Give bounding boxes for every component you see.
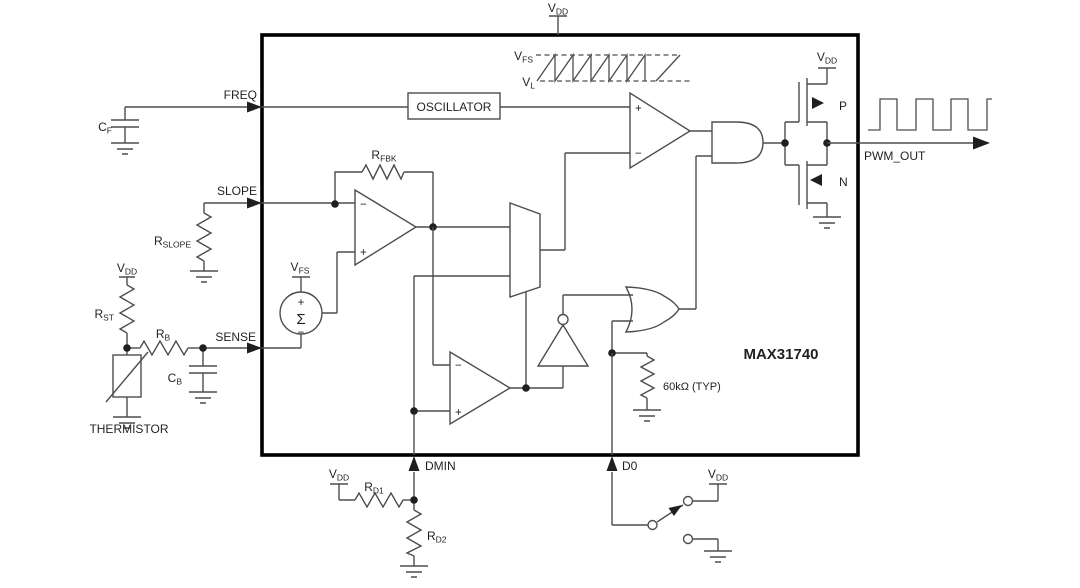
dmin-pin: DMIN (409, 456, 456, 500)
chip-name-label: MAX31740 (743, 346, 818, 363)
thermistor: THERMISTOR (89, 352, 168, 436)
vfs-source-label: VFS (291, 260, 310, 276)
d0-pin-arrow (607, 456, 618, 471)
rslope-resistor: RSLOPE (154, 203, 218, 282)
junction-dot (522, 384, 530, 392)
dmin-comp-minus-wire (433, 227, 450, 365)
pwm-comparator-plus: + (635, 103, 642, 115)
nmos-ground (813, 217, 841, 228)
max31740-functional-diagram: MAX31740 VDD FREQ CF SLOPE RSLOPE VDD RS… (0, 0, 1080, 588)
junction-dot (123, 344, 131, 352)
or-lower-in-wire (612, 321, 633, 353)
error-amplifier-minus: − (360, 199, 367, 211)
rb-label: RB (156, 327, 171, 343)
pwm-waveform (868, 99, 992, 130)
switch-gnd-contact (684, 535, 693, 544)
rd1-label: RD1 (364, 480, 384, 496)
or-gate (626, 287, 679, 332)
vl-level-label: VL (522, 75, 535, 91)
rfbk-label: RFBK (371, 148, 397, 164)
slope-pin: SLOPE (204, 184, 262, 209)
and-gate (712, 122, 763, 163)
slope-pin-label: SLOPE (217, 184, 257, 198)
inverter-bubble (558, 315, 568, 325)
slope-pin-arrow (247, 198, 262, 209)
sense-pin-arrow (247, 343, 262, 354)
pwm-out-label: PWM_OUT (864, 149, 926, 163)
pullup-resistor-60k: 60kΩ (TYP) (612, 353, 721, 421)
dmin-comp-out-wire (510, 292, 563, 388)
vdd-supply-top: VDD (548, 1, 568, 35)
cf-label: CF (98, 120, 112, 136)
pmos-arrow (812, 97, 824, 109)
pwm-comparator: + − (630, 93, 690, 168)
dmin-pin-arrow (409, 456, 420, 471)
dmin-pin-label: DMIN (425, 459, 456, 473)
sawtooth-waveform: VFS VL (514, 49, 691, 91)
junction-dot (410, 407, 418, 415)
vdd-supply-rd1: VDD (329, 467, 355, 500)
freq-pin: FREQ (125, 88, 262, 113)
vfs-summer: VFS + Σ − (280, 252, 355, 339)
pmos-transistor: P VDD (799, 50, 847, 143)
inverter-gate (538, 295, 633, 388)
or-out-wire (679, 156, 712, 309)
rslope-ground (190, 271, 218, 282)
freq-pin-label: FREQ (224, 88, 257, 102)
dmin-comparator: − + (450, 352, 510, 424)
switch-common-contact (648, 521, 657, 530)
vdd-fet-label: VDD (817, 50, 837, 66)
cf-capacitor: CF (98, 107, 139, 154)
pullup-ground (633, 410, 661, 421)
switch-arm-arrow (669, 505, 683, 516)
rd2-ground (400, 566, 428, 577)
ic-boundary (262, 35, 858, 455)
pullup-60k-label: 60kΩ (TYP) (663, 381, 721, 393)
oscillator-label: OSCILLATOR (417, 100, 492, 114)
pwm-comparator-minus: − (635, 148, 642, 160)
junction-dot (781, 139, 789, 147)
vdd-supply-left: VDD (117, 261, 137, 285)
rd1-resistor: RD1 (355, 480, 414, 507)
rb-resistor: RB (127, 327, 203, 355)
vdd-left-label: VDD (117, 261, 137, 277)
nmos-label: N (839, 175, 848, 189)
vfs-level-label: VFS (514, 49, 533, 65)
d0-pin: D0 (607, 456, 649, 525)
error-amplifier: − + (355, 190, 416, 265)
d0-pin-label: D0 (622, 459, 638, 473)
vdd-switch-label: VDD (708, 467, 728, 483)
dmin-comparator-minus: − (455, 360, 462, 372)
rfbk-resistor: RFBK (335, 148, 433, 227)
junction-dot (199, 344, 207, 352)
oscillator-block: OSCILLATOR (408, 93, 500, 119)
switch-vdd-contact (684, 497, 693, 506)
rd2-resistor: RD2 (400, 500, 447, 577)
junction-dot (331, 200, 339, 208)
mux-out-wire (540, 153, 630, 250)
pwm-out-arrow (973, 137, 990, 150)
pwm-output: PWM_OUT (827, 99, 992, 163)
d0-switch: VDD (648, 467, 732, 562)
rslope-label: RSLOPE (154, 234, 191, 250)
pmos-label: P (839, 99, 847, 113)
nmos-transistor: N (799, 143, 848, 228)
freq-pin-arrow (247, 102, 262, 113)
vdd-rd1-label: VDD (329, 467, 349, 483)
schematic-page: MAX31740 VDD FREQ CF SLOPE RSLOPE VDD RS… (0, 0, 1080, 588)
error-amplifier-plus: + (360, 247, 367, 259)
cb-capacitor: CB (168, 348, 217, 403)
mux (510, 203, 540, 297)
cb-ground (189, 392, 217, 403)
sense-internal-wire (262, 334, 301, 348)
junction-dot (410, 496, 418, 504)
rd2-label: RD2 (427, 529, 447, 545)
cb-label: CB (168, 371, 183, 387)
thermistor-label: THERMISTOR (89, 422, 168, 436)
vdd-top-label: VDD (548, 1, 568, 17)
summer-sigma: Σ (296, 311, 305, 328)
cf-ground (111, 143, 139, 154)
summer-plus: + (298, 297, 305, 309)
sense-pin: SENSE (203, 330, 262, 354)
switch-ground (704, 551, 732, 562)
dmin-comparator-plus: + (455, 407, 462, 419)
rst-label: RST (94, 307, 114, 323)
nmos-arrow (810, 174, 822, 186)
sense-pin-label: SENSE (215, 330, 256, 344)
